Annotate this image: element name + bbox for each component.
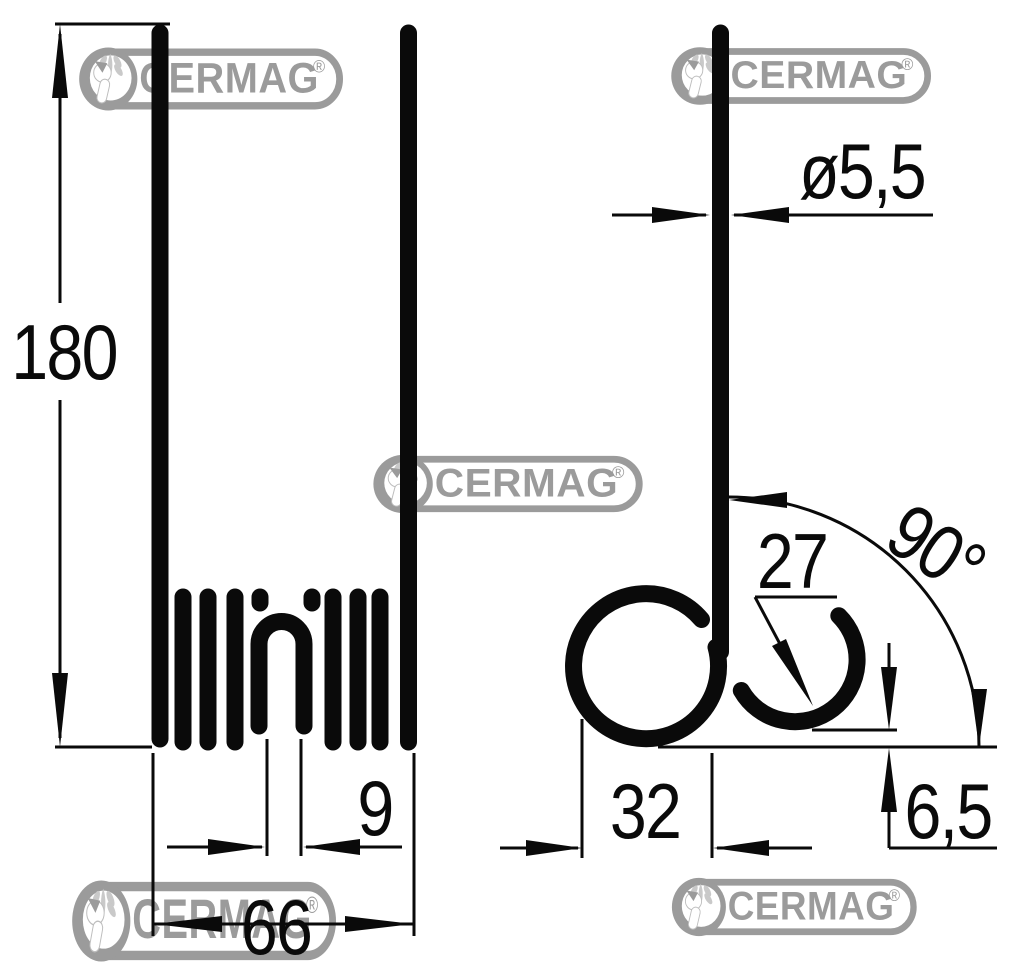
- side-hook: [741, 616, 857, 722]
- arrow-9-left: [208, 839, 265, 855]
- arrow-90-bottom: [971, 689, 987, 747]
- arrow-32-right: [713, 840, 769, 856]
- arrow-180-down: [52, 673, 68, 747]
- technical-drawing-canvas: CERMAG ® CERMAG ®: [0, 0, 1024, 968]
- arrow-66-right: [345, 916, 413, 932]
- dim-label-hook-radius: 27: [757, 522, 827, 600]
- arrow-9-right: [303, 839, 360, 855]
- dim-label-wire-diameter: ø5,5: [799, 132, 925, 210]
- dim-label-coil-width: 32: [610, 772, 680, 850]
- arrow-32-left: [526, 840, 582, 856]
- arrow-27: [772, 639, 813, 706]
- dim-label-hook-clearance: 6,5: [904, 772, 991, 850]
- arrow-90-top: [729, 492, 787, 508]
- dim-label-tine-length: 180: [11, 313, 117, 391]
- arrow-180-up: [52, 24, 68, 98]
- dim-label-overall-width: 66: [241, 888, 311, 966]
- arrow-66-left: [154, 916, 222, 932]
- side-coil-ring: [574, 594, 719, 739]
- center-loop: [259, 622, 304, 727]
- arrow-dia-right: [731, 207, 789, 223]
- arrow-65-up: [881, 748, 897, 812]
- arrow-dia-left: [652, 207, 710, 223]
- dim-label-loop-width: 9: [357, 769, 392, 847]
- front-view-tine: [160, 33, 409, 742]
- arrow-65-down: [881, 667, 897, 730]
